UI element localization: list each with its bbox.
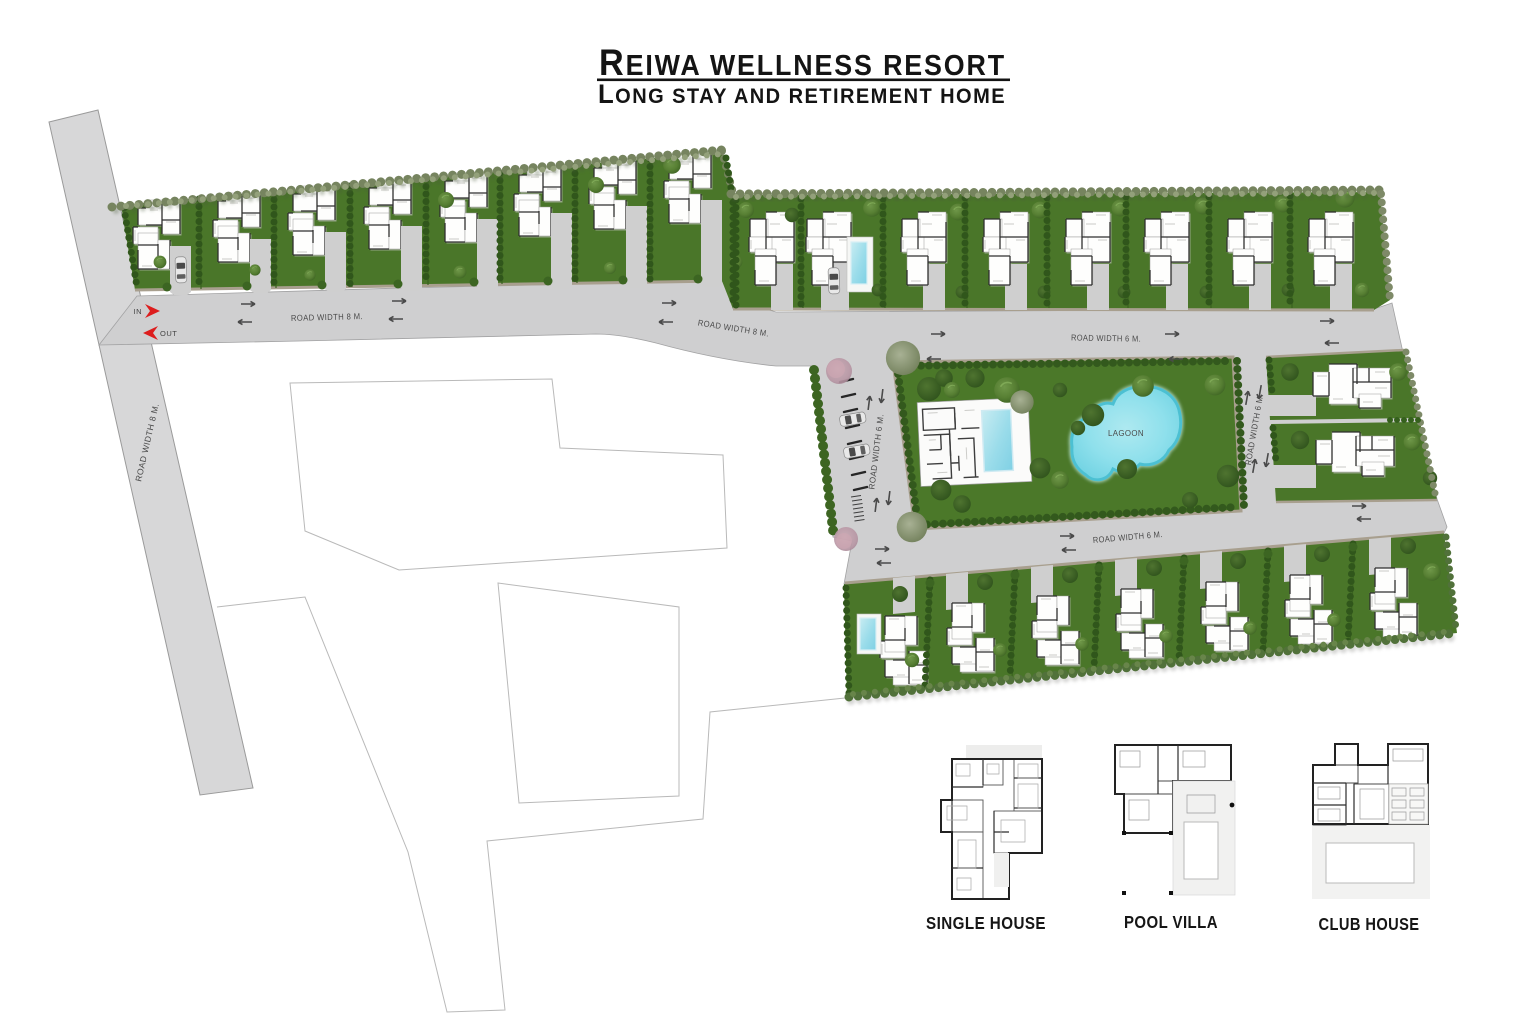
svg-text:ROAD WIDTH 6 M.: ROAD WIDTH 6 M. <box>1071 332 1141 343</box>
svg-text:CLUB HOUSE: CLUB HOUSE <box>1319 914 1420 934</box>
svg-text:LONG STAY AND RETIREMENT HOME: LONG STAY AND RETIREMENT HOME <box>598 79 1006 109</box>
svg-text:ROAD WIDTH 8 M.: ROAD WIDTH 8 M. <box>291 311 363 323</box>
svg-text:OUT: OUT <box>160 329 177 338</box>
svg-text:LAGOON: LAGOON <box>1108 428 1144 438</box>
svg-text:IN: IN <box>134 307 143 316</box>
svg-text:POOL VILLA: POOL VILLA <box>1124 912 1218 932</box>
svg-text:REIWA WELLNESS RESORT: REIWA WELLNESS RESORT <box>599 42 1006 83</box>
svg-text:SINGLE HOUSE: SINGLE HOUSE <box>926 913 1046 933</box>
